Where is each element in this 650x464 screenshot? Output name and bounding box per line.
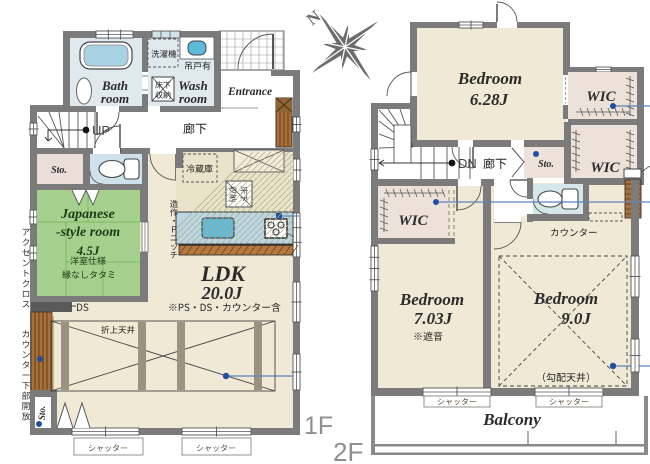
svg-text:Sto.: Sto.	[37, 406, 47, 420]
svg-text:Balcony: Balcony	[482, 410, 541, 429]
svg-text:Sto.: Sto.	[51, 165, 67, 176]
svg-text:room: room	[179, 91, 207, 106]
svg-text:1F: 1F	[304, 412, 333, 440]
svg-text:9.0J: 9.0J	[561, 309, 591, 328]
svg-text:Bedroom: Bedroom	[533, 289, 598, 308]
svg-text:4.5J: 4.5J	[76, 243, 100, 258]
svg-text:20.0J: 20.0J	[201, 283, 244, 303]
svg-text:WIC: WIC	[398, 213, 428, 229]
svg-text:WIC: WIC	[590, 160, 620, 176]
svg-text:Bedroom: Bedroom	[399, 290, 464, 309]
svg-text:UP: UP	[92, 123, 110, 138]
svg-text:WIC: WIC	[586, 89, 616, 105]
svg-text:room: room	[101, 91, 129, 106]
svg-text:Japanese: Japanese	[60, 207, 115, 222]
svg-text:Bedroom: Bedroom	[457, 69, 522, 88]
svg-text:Sto.: Sto.	[538, 159, 554, 170]
svg-text:DN: DN	[458, 156, 477, 171]
svg-text:2F: 2F	[333, 437, 363, 464]
svg-text:6.28J: 6.28J	[470, 90, 509, 109]
svg-text:Entrance: Entrance	[227, 86, 272, 98]
svg-text:-style room: -style room	[56, 225, 120, 240]
svg-text:7.03J: 7.03J	[414, 309, 453, 328]
